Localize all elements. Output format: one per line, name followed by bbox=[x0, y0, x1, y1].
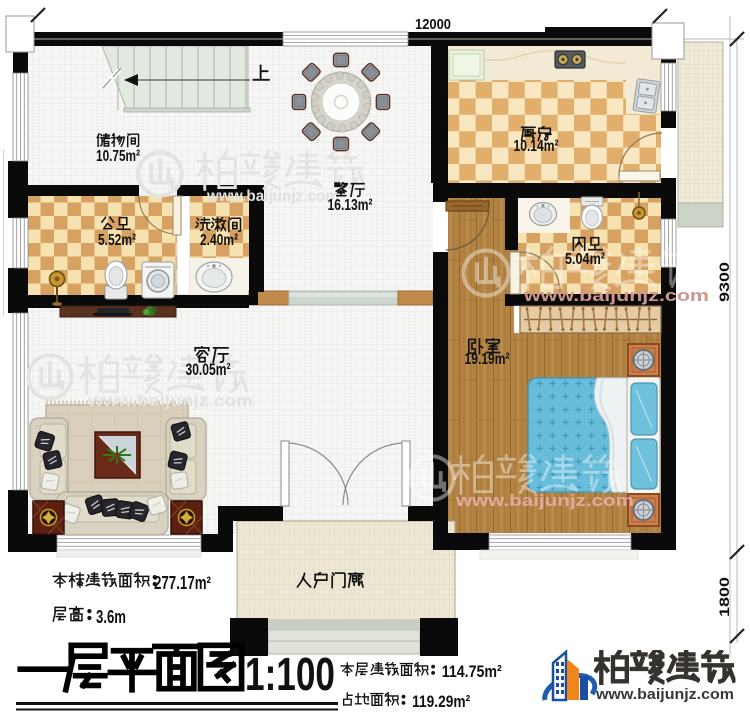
svg-text:5.52m²: 5.52m² bbox=[98, 232, 136, 249]
svg-text:10.14m²: 10.14m² bbox=[514, 138, 559, 155]
svg-text:12000: 12000 bbox=[415, 16, 451, 33]
svg-text:10.75m²: 10.75m² bbox=[96, 148, 140, 165]
svg-text:2.40m²: 2.40m² bbox=[200, 232, 238, 249]
svg-text:www.baijunjz.com: www.baijunjz.com bbox=[523, 286, 709, 305]
svg-text:119.29m²: 119.29m² bbox=[412, 692, 470, 711]
svg-text:19.19m²: 19.19m² bbox=[465, 351, 510, 368]
svg-text:5.04m²: 5.04m² bbox=[565, 251, 605, 268]
svg-text:1:100: 1:100 bbox=[245, 648, 335, 700]
svg-text:277.17m²: 277.17m² bbox=[154, 573, 211, 593]
svg-text:16.13m²: 16.13m² bbox=[328, 197, 373, 214]
svg-text:114.75m²: 114.75m² bbox=[442, 662, 502, 681]
svg-text:30.05m²: 30.05m² bbox=[186, 361, 231, 379]
svg-text:www.baijunjz.com: www.baijunjz.com bbox=[595, 686, 734, 703]
svg-text:3.6m: 3.6m bbox=[96, 607, 126, 627]
svg-text:www.baijunjz.com: www.baijunjz.com bbox=[206, 188, 339, 205]
svg-text:1800: 1800 bbox=[716, 577, 732, 617]
svg-text:www.baijunjz.com: www.baijunjz.com bbox=[455, 492, 634, 510]
svg-text:9300: 9300 bbox=[716, 262, 732, 302]
svg-text:www.baijunjz.com: www.baijunjz.com bbox=[87, 393, 253, 410]
